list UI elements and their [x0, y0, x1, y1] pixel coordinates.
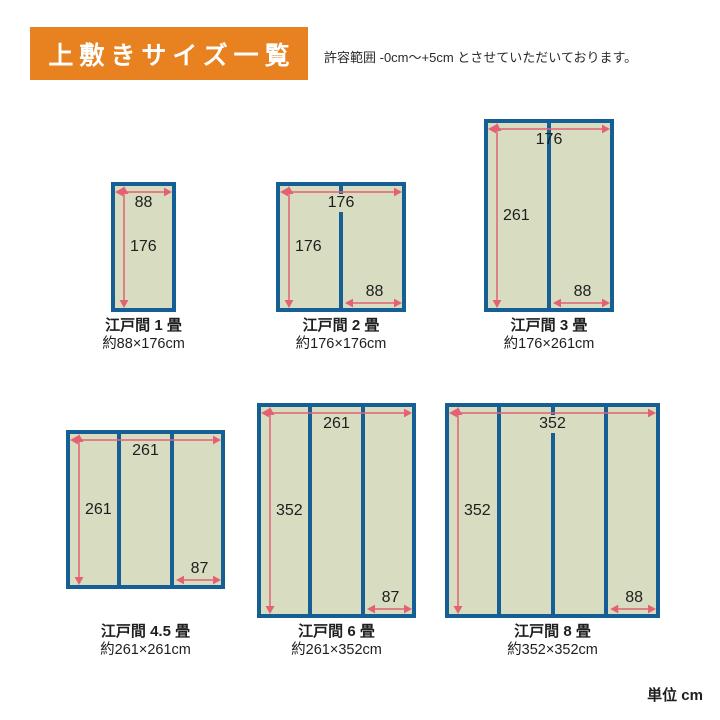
height-arrow [120, 186, 129, 308]
panel-width-label: 87 [191, 560, 209, 578]
width-dimension-label: 352 [534, 415, 571, 433]
diagram-name: 江戸間 8 畳 [514, 622, 591, 641]
size-chart-page: 上敷きサイズ一覧 許容範囲 -0cm〜+5cm とさせていただいております。 8… [0, 0, 720, 720]
diagram-size: 約88×176cm [102, 335, 185, 354]
mat-rectangle: 17626188 [484, 119, 614, 312]
height-dimension-label: 176 [130, 238, 157, 256]
diagram-caption: 江戸間 4.5 畳約261×261cm [66, 622, 225, 660]
height-arrow [285, 186, 294, 308]
mat-rectangle: 88176 [111, 182, 176, 312]
tolerance-note: 許容範囲 -0cm〜+5cm とさせていただいております。 [324, 47, 637, 66]
diagram-size: 約352×352cm [507, 641, 598, 660]
diagram-size: 約261×352cm [291, 641, 382, 660]
width-dimension-label: 261 [127, 442, 164, 460]
diagram-size: 約261×261cm [100, 641, 191, 660]
diagram-caption: 江戸間 8 畳約352×352cm [445, 622, 660, 660]
diagram-caption: 江戸間 1 畳約88×176cm [111, 316, 176, 354]
diagram-name: 江戸間 1 畳 [105, 316, 182, 335]
page-title: 上敷きサイズ一覧 [42, 36, 295, 72]
width-dimension-label: 176 [323, 194, 360, 212]
diagram-name: 江戸間 2 畳 [303, 316, 380, 335]
height-dimension-label: 352 [276, 502, 303, 520]
height-arrow [75, 434, 84, 585]
height-arrow [454, 407, 463, 614]
height-dimension-label: 261 [85, 501, 112, 519]
diagram-caption: 江戸間 2 畳約176×176cm [276, 316, 406, 354]
panel-width-label: 88 [574, 283, 592, 301]
title-banner: 上敷きサイズ一覧 [30, 27, 308, 80]
height-arrow [266, 407, 275, 614]
height-dimension-label: 261 [503, 207, 530, 225]
mat-rectangle: 26126187 [66, 430, 225, 589]
panel-width-label: 88 [625, 589, 643, 607]
width-dimension-label: 261 [318, 415, 355, 433]
height-dimension-label: 352 [464, 502, 491, 520]
mat-rectangle: 26135287 [257, 403, 416, 618]
mat-rectangle: 17617688 [276, 182, 406, 312]
diagram-caption: 江戸間 3 畳約176×261cm [484, 316, 614, 354]
diagram-size: 約176×261cm [504, 335, 595, 354]
mat-rectangle: 35235288 [445, 403, 660, 618]
unit-label: 単位 cm [647, 684, 703, 705]
panel-width-label: 87 [382, 589, 400, 607]
height-arrow [493, 123, 502, 308]
diagram-size: 約176×176cm [296, 335, 387, 354]
width-dimension-label: 176 [531, 131, 568, 149]
diagram-caption: 江戸間 6 畳約261×352cm [257, 622, 416, 660]
diagram-name: 江戸間 4.5 畳 [101, 622, 190, 641]
diagram-name: 江戸間 3 畳 [511, 316, 588, 335]
panel-width-label: 88 [366, 283, 384, 301]
diagram-name: 江戸間 6 畳 [298, 622, 375, 641]
width-dimension-label: 88 [130, 194, 158, 212]
height-dimension-label: 176 [295, 238, 322, 256]
